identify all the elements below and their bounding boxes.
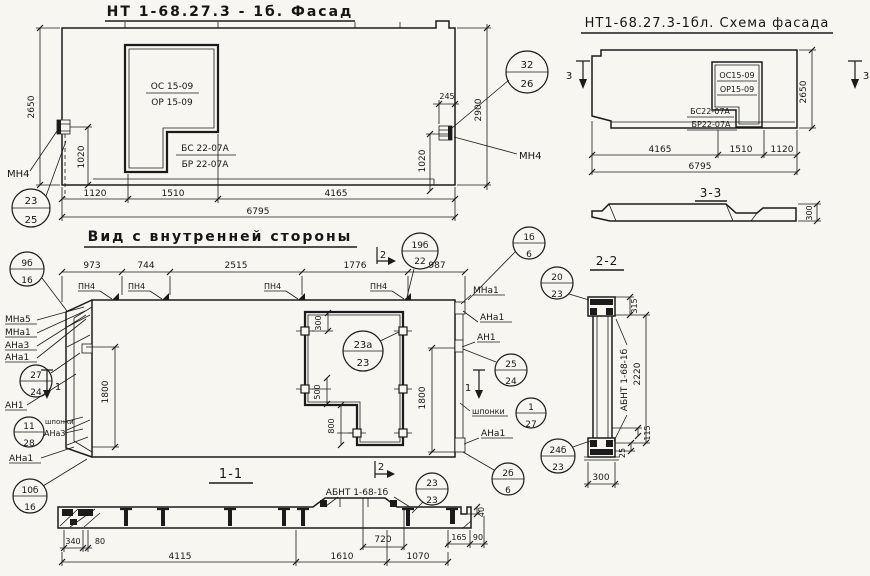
label-pn4: ПН4 [264, 282, 281, 291]
view-right-lug-bottom [455, 438, 465, 452]
section-2-label-bottom: 2 [378, 462, 384, 473]
label-ana1-bottom-left: АНа1 [9, 454, 33, 464]
drawing-sheet: НТ 1-68.27.3 - 1б. Фасад ОС 15-09 ОР 15-… [0, 0, 870, 576]
facade-top-ticks [125, 22, 400, 28]
callout-9b-16-bottom: 16 [21, 276, 33, 286]
slab-left-anchor [62, 509, 73, 516]
view-right-lug-mid [455, 340, 463, 352]
callout-24b-23-top: 24б [549, 446, 566, 456]
hump-anchor-left [320, 500, 327, 507]
sec22-top-block-angle [606, 308, 613, 315]
scheme-dim-1510: 1510 [730, 145, 753, 155]
scheme-dim-2650-text: 2650 [799, 80, 809, 103]
dim-4165-text: 4165 [325, 189, 348, 199]
scheme-window-label-os: ОС15-09 [719, 71, 754, 80]
facade-window-label-or: ОР 15-09 [151, 98, 193, 108]
anchor-mn4-right-fill [448, 126, 452, 140]
callout-2b-6-top: 2б [502, 469, 514, 479]
label-shponki-right: шпонки [472, 407, 505, 416]
sec22-dim-315-text: 315 [630, 298, 639, 313]
scheme-window-label-or: ОР15-09 [720, 85, 754, 94]
dim-1120-text: 1120 [84, 189, 107, 199]
callout-2b-6-leader [463, 452, 524, 479]
label-ana3-left: АНа3 [44, 429, 65, 438]
facade-window-label-os: ОС 15-09 [151, 82, 194, 92]
callout-19b-22-top: 19б [411, 241, 428, 251]
section-1-label-right: 1 [465, 383, 471, 394]
sec22-abnt-label: АБНТ 1-68-1б [620, 348, 630, 411]
section-1-mark-right [473, 370, 485, 392]
dim-1070-text: 1070 [407, 552, 430, 562]
section-2-2-drawing: 2-2 315 2220 115 25 300 АБНТ 1-68-1б 20 … [541, 254, 652, 488]
dim-90-text: 90 [473, 533, 483, 542]
dim-1800-left-text: 1800 [101, 380, 111, 403]
scheme-drawing: НТ1-68.27.3-1бл. Схема фасада ОС15-09 ОР… [566, 16, 869, 224]
label-mn4-left-leader [30, 131, 66, 196]
view-left-end-outer [66, 300, 92, 457]
label-mna1-right: МНа1 [473, 286, 499, 296]
section-3-arrow-left [579, 79, 587, 89]
dim-1800-right-text: 1800 [418, 386, 428, 409]
view-left-lug [82, 344, 92, 353]
blueprint-svg: НТ 1-68.27.3 - 1б. Фасад ОС 15-09 ОР 15-… [0, 0, 870, 576]
callout-9b-16-top: 9б [21, 259, 33, 269]
dim-1510-text: 1510 [162, 189, 185, 199]
callout-32-26-leader [452, 72, 548, 128]
label-mna5: МНа5 [5, 315, 31, 325]
callout-1b-6-top: 1б [523, 233, 535, 243]
callout-23-23-top: 23 [426, 479, 437, 489]
section-3-mark-right [848, 61, 862, 81]
facade-window-label-bs: БС 22-07А [181, 144, 229, 154]
label-shponki-left: шпонки [45, 418, 74, 426]
hump-anchor-right [390, 500, 397, 507]
section-3-mark-left [576, 61, 590, 81]
label-mna1-right-leader [461, 295, 505, 304]
scheme-dim-1120: 1120 [771, 145, 794, 155]
label-an1-right: АН1 [477, 333, 496, 343]
callout-9b-16-leader [10, 269, 67, 311]
sec22-top-block-fill [590, 299, 613, 305]
sec22-shaft-outer [593, 316, 612, 438]
view-right-lug-top [455, 302, 465, 314]
scheme-window-label-br: БР22-07А [691, 120, 731, 129]
callout-20-23-top: 20 [551, 273, 563, 283]
dim-973: 973 [83, 261, 100, 271]
slab-left-anchor [78, 509, 93, 516]
slab-left-anchor [70, 519, 77, 525]
pn4-labels: ПН4 ПН4 ПН4 ПН4 [78, 282, 411, 300]
callout-24b-23-bottom: 23 [552, 463, 563, 473]
scheme-dim-6795: 6795 [689, 162, 712, 172]
label-ana3: АНа3 [5, 341, 29, 351]
sec22-dim-300-text: 300 [592, 473, 609, 483]
callout-20-23-bottom: 23 [551, 290, 562, 300]
label-pn4: ПН4 [128, 282, 145, 291]
callout-19b-22-bottom: 22 [414, 257, 425, 267]
callout-1-27-bottom: 27 [525, 420, 536, 430]
callout-23-25-top: 23 [25, 196, 38, 207]
dim-300-text: 300 [314, 315, 323, 330]
sec22-shaft-inner [597, 316, 608, 438]
dim-4115-text: 4115 [169, 552, 192, 562]
dim-165-text: 165 [451, 533, 466, 542]
sec33-dim-300-text: 300 [805, 205, 814, 220]
section-3-label-right: 3 [863, 71, 869, 82]
facade-bottom-strip [93, 179, 434, 185]
label-pn4: ПН4 [78, 282, 95, 291]
dim-1020-right [426, 134, 452, 191]
anchor-mn4-left-fill [57, 120, 61, 134]
sec22-dim-ticks [585, 294, 649, 487]
callout-1-27-top: 1 [528, 403, 534, 413]
section-3-label-left: 3 [566, 71, 572, 82]
dim-800-text: 800 [327, 418, 336, 433]
dim-6795-text: 6795 [247, 207, 270, 217]
section-1-1-drawing: 1-1 2 АБНТ 1-68-1б 23 23 40 [58, 461, 488, 566]
dim-340-text: 340 [65, 537, 80, 546]
sec22-bottom-block-angle [606, 440, 613, 447]
dim-720-text: 720 [374, 535, 391, 545]
dim-2650 [36, 28, 60, 185]
section-2-label-top: 2 [380, 250, 386, 261]
dim-2900-text: 2900 [474, 98, 484, 121]
callout-25-24-bottom: 24 [505, 377, 517, 387]
section-3-arrow-right [851, 79, 859, 89]
section-1-arrow-right [475, 390, 483, 399]
label-mna1: МНа1 [5, 328, 31, 338]
callout-10b-16-top: 10б [21, 486, 38, 496]
callout-32-26-bottom: 26 [521, 79, 534, 90]
callout-32-26-top: 32 [521, 60, 534, 71]
sec22-title: 2-2 [596, 254, 619, 268]
sec22-bottom-block-fill [590, 449, 613, 455]
sec22-dim-2220-text: 2220 [633, 362, 643, 385]
dim-1610-text: 1610 [331, 552, 354, 562]
sec11-title: 1-1 [219, 467, 243, 482]
callout-23a-23-top: 23а [354, 340, 373, 351]
sec22-top-block-angle [590, 308, 597, 315]
dim-80-text: 80 [95, 537, 105, 546]
section-2-arrow-top [388, 257, 396, 265]
callout-23-23-bottom: 23 [426, 496, 437, 506]
sec22-dim-25-text: 25 [618, 448, 627, 458]
sec33-title: 3-3 [700, 186, 723, 200]
sec11-abnt-label: АБНТ 1-68-1б [326, 488, 389, 498]
sec22-bottom-block-angle [590, 440, 597, 447]
dim-2650-text: 2650 [27, 95, 37, 118]
callout-2b-6-bottom: 6 [505, 486, 511, 496]
callout-27-24-top: 27 [30, 371, 41, 381]
label-mn4-right-leader [454, 137, 517, 154]
scheme-title: НТ1-68.27.3-1бл. Схема фасада [585, 16, 830, 31]
scheme-panel-outline [592, 50, 797, 128]
label-mn4-left: МН4 [7, 169, 30, 180]
dim-500-text: 500 [313, 384, 322, 399]
callout-1b-6-bottom: 6 [526, 250, 532, 260]
facade-window-label-br: БР 22-07А [182, 160, 230, 170]
label-ana1-right2: АНа1 [481, 429, 505, 439]
facade-panel-outline [62, 21, 455, 185]
scheme-dim-4165: 4165 [649, 145, 672, 155]
callout-11-28-bottom: 28 [23, 439, 35, 449]
dim-245-text: 245 [439, 92, 454, 101]
dim-1020-right-text: 1020 [418, 149, 428, 172]
dim-1776: 1776 [344, 261, 367, 271]
callout-10b-16-bottom: 16 [24, 503, 36, 513]
view-title: Вид с внутренней стороны [88, 229, 353, 245]
sec22-dim-115-text: 115 [643, 425, 652, 440]
callout-23-25-bottom: 25 [25, 215, 38, 226]
label-ana1-right: АНа1 [480, 313, 504, 323]
label-an1-left: АН1 [5, 401, 24, 411]
dim-2515: 2515 [225, 261, 248, 271]
callout-11-28-top: 11 [23, 422, 34, 432]
facade-drawing: НТ 1-68.27.3 - 1б. Фасад ОС 15-09 ОР 15-… [7, 4, 548, 227]
scheme-window-label-bs: БС22-07А [690, 107, 730, 116]
section-2-arrow-bottom [387, 470, 395, 478]
callout-25-24-top: 25 [505, 360, 516, 370]
label-mn4-right: МН4 [519, 151, 542, 162]
dim-744: 744 [137, 261, 154, 271]
inner-view-drawing: Вид с внутренней стороны 300 500 800 [5, 227, 546, 513]
label-ana1: АНа1 [5, 353, 29, 363]
facade-title: НТ 1-68.27.3 - 1б. Фасад [107, 4, 354, 20]
label-pn4: ПН4 [370, 282, 387, 291]
callout-23a-23-bottom: 23 [357, 358, 370, 369]
dim-1020-left-text: 1020 [77, 145, 87, 168]
slab-ribs [120, 509, 458, 526]
sec33-profile [592, 204, 796, 221]
